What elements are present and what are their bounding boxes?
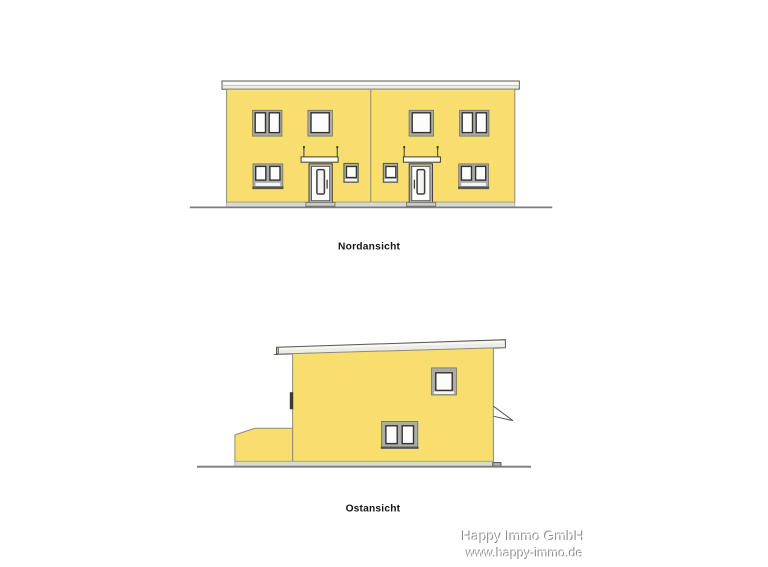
svg-text:Ostansicht: Ostansicht: [346, 504, 401, 515]
svg-text:Nordansicht: Nordansicht: [338, 242, 401, 253]
svg-text:www.happy-immo.de: www.happy-immo.de: [466, 547, 584, 561]
svg-text:Happy Immo GmbH: Happy Immo GmbH: [462, 528, 585, 544]
